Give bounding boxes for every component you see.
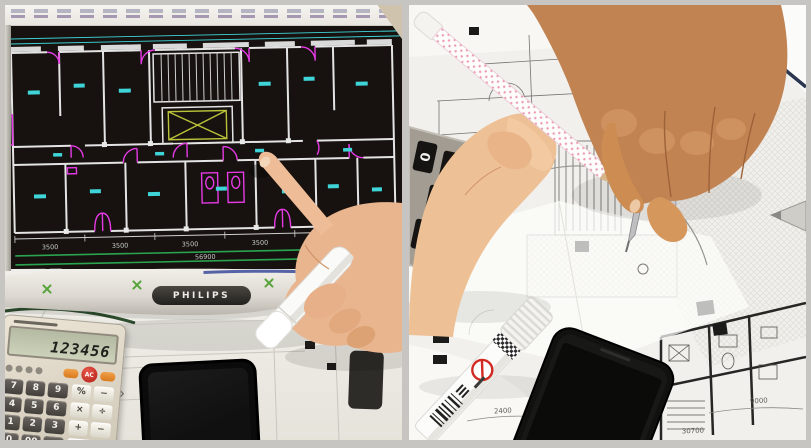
toolbar-button — [149, 9, 163, 21]
calc-key-div: ÷ — [92, 404, 113, 421]
toolbar-button — [11, 9, 25, 21]
cad-floorplan: 3500 3500 3500 3500 3500 7800 56900 — [5, 25, 402, 269]
toolbar-button — [333, 9, 347, 21]
staircase — [153, 52, 240, 102]
calc-key-minus: − — [93, 386, 114, 403]
philips-logo: PHILIPS — [152, 286, 251, 305]
calc-orange-key — [63, 368, 79, 378]
dim-3500-4: 3500 — [252, 239, 269, 247]
dim-3500-5: 3500 — [322, 237, 339, 245]
calc-key-0: 0 — [5, 432, 19, 440]
dim-56900: 56900 — [195, 253, 216, 261]
calc-key-8: 8 — [26, 380, 46, 397]
toolbar-button — [172, 9, 186, 21]
dim-9000: 9000 — [750, 397, 768, 406]
toolbar-button — [287, 9, 301, 21]
calc-key-percent: % — [71, 384, 92, 401]
dim-3500-2: 3500 — [112, 242, 129, 250]
calc-round-key — [25, 366, 33, 374]
dim-30700: 30700 — [682, 427, 705, 436]
dim-3500-1: 3500 — [42, 243, 59, 251]
toolbar-button — [241, 9, 255, 21]
calc-key-3: 3 — [45, 418, 65, 435]
calc-key-1: 1 — [5, 414, 21, 431]
calc-key-plus: + — [68, 420, 89, 437]
calc-key-equals: = — [66, 438, 110, 440]
calc-key-6: 6 — [46, 400, 66, 417]
calc-round-key — [35, 366, 43, 374]
toolbar-button — [80, 9, 94, 21]
toolbar-button — [356, 9, 370, 21]
photo-collage-frame: 3500 3500 3500 3500 3500 7800 56900 — [0, 0, 811, 448]
calc-key-minus2: − — [90, 422, 111, 439]
toolbar-button — [103, 9, 117, 21]
calculator-display-value: 123456 — [50, 338, 112, 361]
plant-sprig — [337, 281, 349, 293]
toolbar-button — [195, 9, 209, 21]
plant-sprig — [263, 277, 275, 289]
calc-key-00: 00 — [21, 434, 41, 440]
plant-sprig — [131, 279, 143, 291]
calc-ac-key: AC — [81, 366, 98, 383]
calc-round-key — [15, 365, 23, 373]
plant-sprig — [41, 283, 53, 295]
calculator-left: 123456 AC 7 8 9 4 5 6 1 2 — [5, 314, 127, 440]
right-photo-drafting-hands: 2400 9000 30700 0 0 1 4 — [409, 5, 806, 440]
toolbar-button — [57, 9, 71, 21]
cad-toolbar — [5, 5, 402, 26]
calculator-display: 123456 — [7, 325, 119, 364]
calc-key-9: 9 — [48, 382, 68, 399]
calc-key-dot: . — [43, 436, 63, 440]
calc-round-key — [5, 364, 13, 372]
toolbar-button — [34, 9, 48, 21]
phone-screen — [148, 367, 253, 440]
calc-key-7: 7 — [5, 378, 24, 395]
calc-key-5: 5 — [24, 398, 44, 415]
left-photo-cad-workstation: 3500 3500 3500 3500 3500 7800 56900 — [5, 5, 402, 440]
dimension-line — [15, 228, 396, 243]
calc-key-4: 4 — [5, 396, 22, 413]
phone-dock — [348, 350, 384, 409]
toolbar-button — [126, 9, 140, 21]
cad-monitor-screen: 3500 3500 3500 3500 3500 7800 56900 — [5, 25, 402, 269]
toolbar-button — [310, 9, 324, 21]
room-labels — [28, 75, 382, 198]
toolbar-button — [218, 9, 232, 21]
dim-2400: 2400 — [494, 407, 512, 416]
dim-3500-3: 3500 — [182, 240, 199, 248]
monitor-left-bezel — [5, 25, 11, 271]
elevator-shaft — [162, 106, 233, 143]
dim-7800: 7800 — [373, 236, 390, 244]
smartphone-left — [138, 358, 262, 440]
calc-orange-key — [100, 371, 116, 381]
calc-key-2: 2 — [22, 416, 42, 433]
toolbar-button — [264, 9, 278, 21]
calc-key-mul: × — [69, 402, 90, 419]
